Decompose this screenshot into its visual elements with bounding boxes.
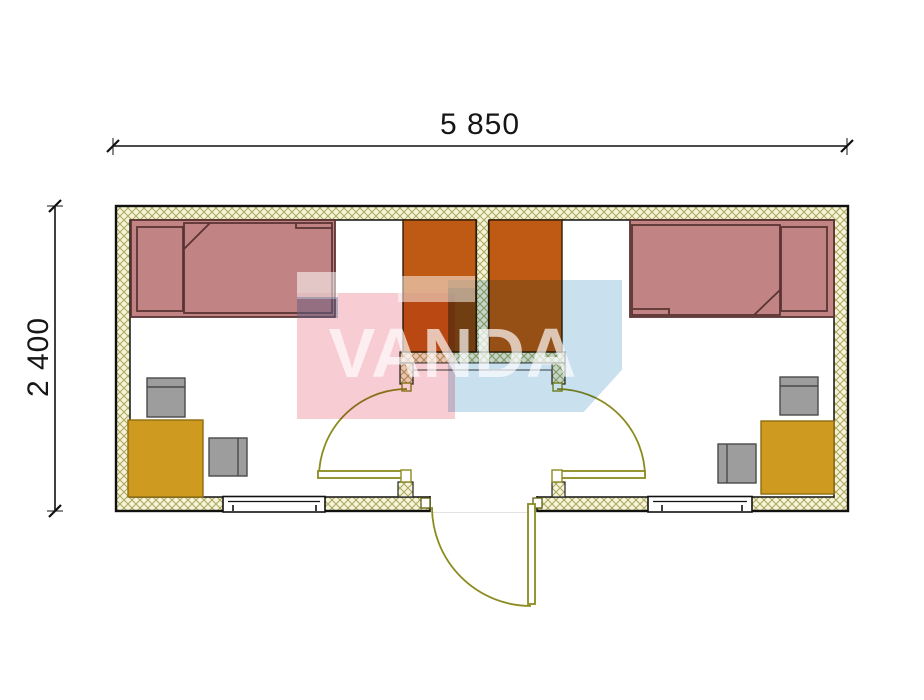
chair-right-side [718,444,756,483]
window-right [648,497,752,513]
interior-door-right [552,383,645,482]
bed-right [630,220,834,317]
entrance-door-swing-arc [432,507,531,606]
window-left [223,497,325,513]
interior-door-right-swing-arc [557,389,645,477]
interior-door-right-leaf [557,471,645,478]
table-left [128,420,203,497]
bed-left-pillow [137,227,183,311]
interior-door-left-leaf [318,471,407,478]
bed-left [131,220,335,317]
bed-right-pillow [781,227,827,311]
dimension-height-label: 2 400 [22,257,54,457]
chair-left-top [147,378,185,417]
entrance-door-leaf [528,504,535,604]
chairs [147,377,818,483]
wardrobe-right [489,220,562,352]
table-right [761,421,834,494]
floor-plan-drawing [0,0,924,700]
interior-door-left [318,383,411,482]
entrance-door [421,496,542,606]
chair-right-top [780,377,818,415]
dimension-width-label: 5 850 [380,108,580,142]
interior-door-left-swing-arc [319,389,407,477]
floor-plan-page: 5 850 2 400 VANDA [0,0,924,700]
wardrobe-left [403,220,476,352]
chair-left-side [209,438,247,476]
